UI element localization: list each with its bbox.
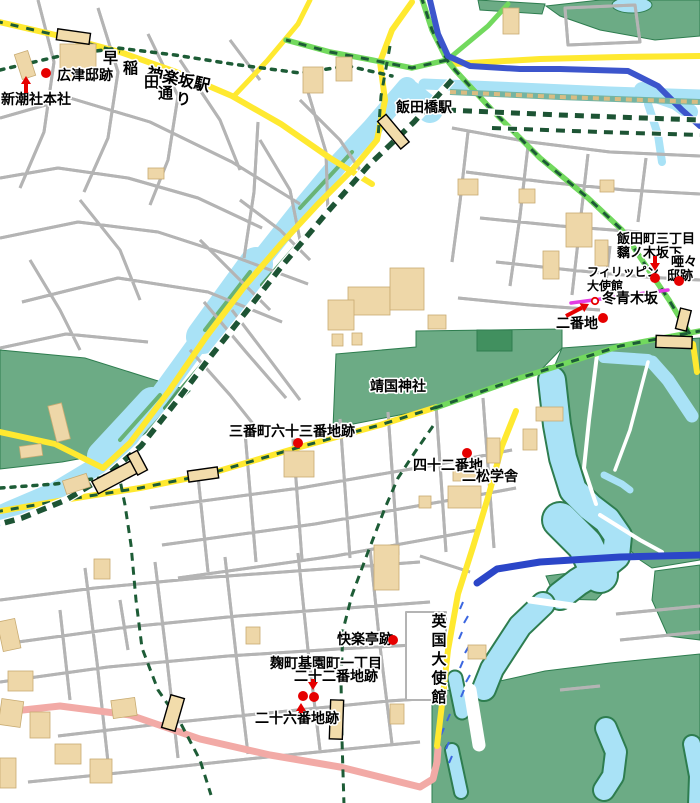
dot-hirotsu	[41, 68, 51, 78]
map-screenshot: 神楽坂駅広津邸跡新潮社本社早稲田通り飯田橋駅飯田町三丁目黐ノ木坂下唖々邸跡フィリ…	[0, 0, 700, 803]
label-nisho-gakusha: 二松学舎	[462, 468, 519, 484]
dot-aa-tei	[674, 276, 684, 286]
label-uk-embassy: 英国大使館	[430, 612, 447, 706]
label-hirotsu-tei-ato: 広津邸跡	[57, 67, 113, 83]
map: 神楽坂駅広津邸跡新潮社本社早稲田通り飯田橋駅飯田町三丁目黐ノ木坂下唖々邸跡フィリ…	[0, 0, 700, 803]
label-shinchosha-honsha: 新潮社本社	[1, 91, 71, 107]
label-iidamachi-3chome: 飯田町三丁目	[616, 231, 695, 246]
label-aa-tei-ato: 唖々	[671, 254, 697, 269]
dot-42banchi	[462, 448, 472, 458]
uchibori-dori-yellow-stub	[693, 344, 697, 372]
label-22banchi-ato: 二十二番地跡	[294, 668, 378, 684]
label-waseda-dori: 早	[103, 50, 118, 67]
circle-nibanchi	[592, 298, 598, 304]
label-waseda-dori: 通	[158, 85, 173, 102]
label-waseda-dori: 田	[144, 74, 159, 91]
dot-22banchi	[309, 692, 319, 702]
label-kairakutei-ato: 快楽亭跡	[337, 631, 393, 647]
label-philippine-embassy: フィリッピン	[587, 265, 659, 279]
label-waseda-dori: り	[176, 91, 191, 108]
label-nibanchi: 二番地	[556, 315, 598, 331]
dot-mochinoki-sakashita	[650, 273, 660, 283]
dot-kairakutei	[388, 635, 398, 645]
dot-26banchi	[298, 691, 308, 701]
station-building-kudanshita-b	[656, 335, 692, 348]
label-iidabashi-station: 飯田橋駅	[395, 99, 453, 115]
dot-sanbancho-63	[293, 438, 303, 448]
label-26banchi-ato: 二十六番地跡	[255, 710, 339, 726]
label-mochinoki-zaka: 冬青木坂	[602, 290, 659, 306]
dot-nibanchi-area	[598, 313, 608, 323]
label-yasukuni-jinja: 靖国神社	[370, 378, 426, 394]
label-sanbancho-63banchi-ato: 三番町六十三番地跡	[229, 423, 355, 439]
label-waseda-dori: 稲	[123, 59, 138, 77]
